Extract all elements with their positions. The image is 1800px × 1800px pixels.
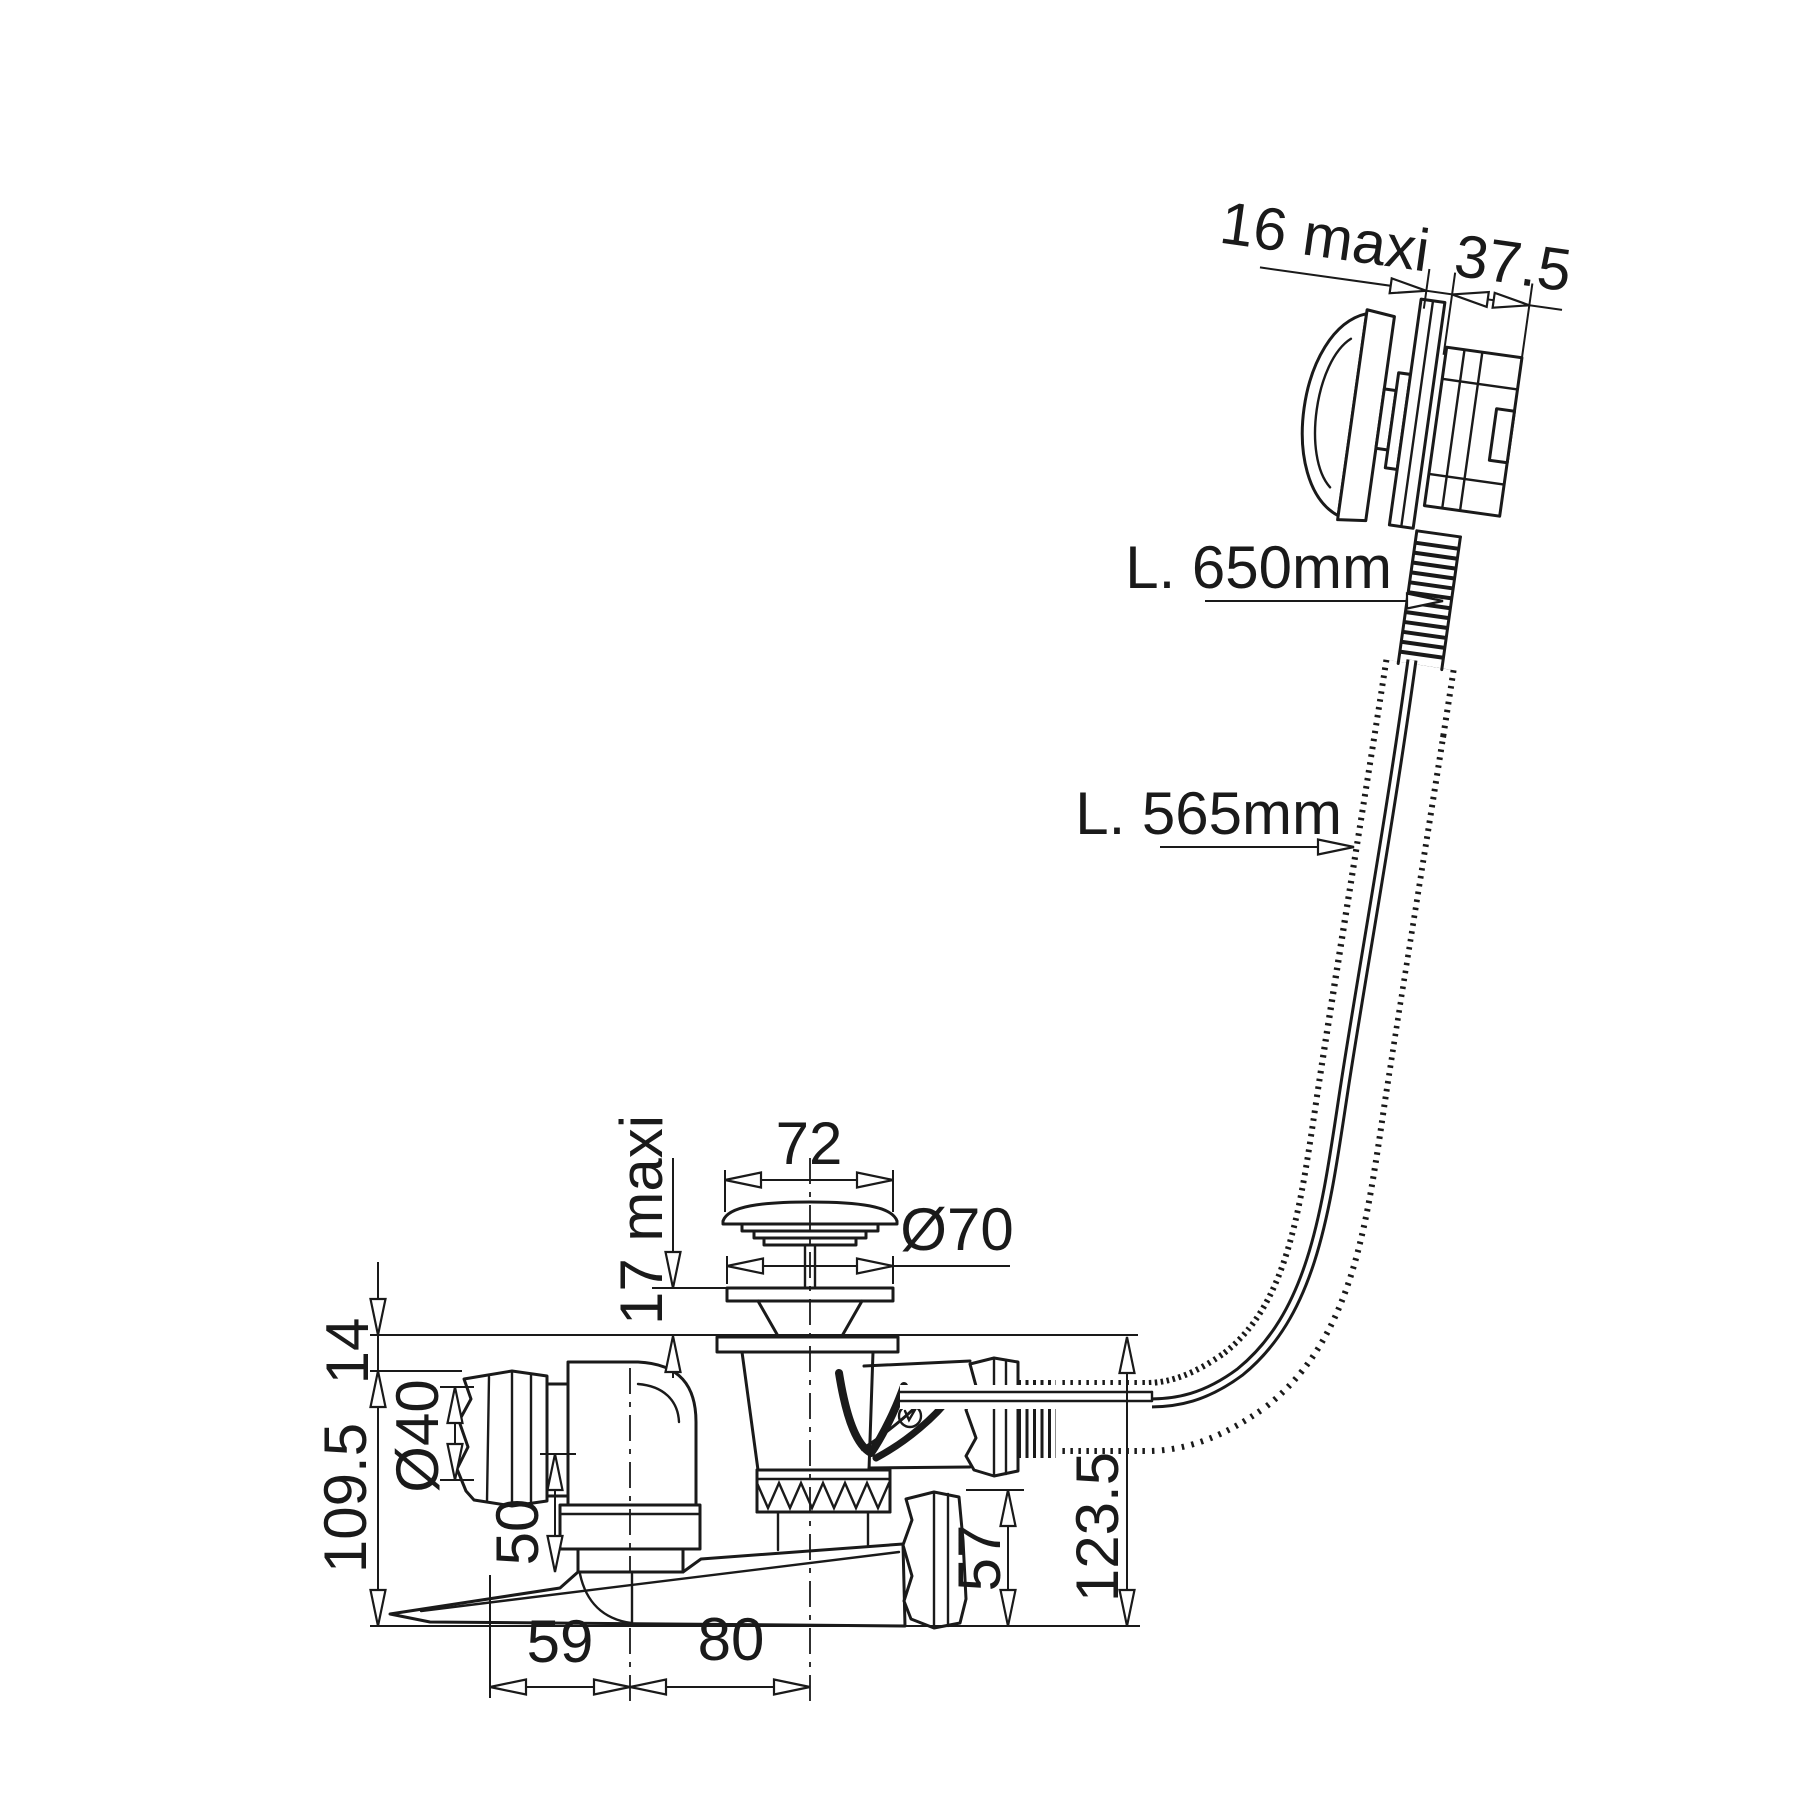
waste-body — [742, 1352, 758, 1470]
dim-label-sheath-length: L. 565mm — [1075, 780, 1342, 847]
dim-label-height-right: 123.5 — [1064, 1452, 1131, 1602]
dim-label-flange-offset: 14 — [314, 1318, 381, 1385]
dim-label-inlet-diameter: Ø40 — [384, 1379, 451, 1492]
dimension-annotations: L. 650mm L. 565mm 72 Ø70 17 maxi 14 — [312, 534, 1443, 1706]
trap-bottom-tray — [390, 1544, 905, 1626]
dim-label-flange-diameter: Ø70 — [900, 1196, 1013, 1263]
dim-label-overflow-wall-max: 16 maxi — [1216, 189, 1433, 285]
dim-label-plug-lift: 17 maxi — [608, 1115, 675, 1325]
dim-label-outlet-left: 59 — [527, 1608, 594, 1675]
dim-label-height-left: 109.5 — [312, 1423, 379, 1573]
waste-top-flange — [717, 1337, 898, 1352]
dim-label-outlet-right: 80 — [698, 1606, 765, 1673]
elbow-inlet — [568, 1362, 696, 1505]
dim-label-overflow-depth: 37.5 — [1451, 222, 1576, 305]
control-cable — [1062, 660, 1420, 1417]
overflow-knob-assembly: 16 maxi 37.5 — [1163, 189, 1575, 680]
dim-label-cable-length: L. 650mm — [1125, 534, 1392, 601]
overflow-connection-nut — [966, 1358, 1018, 1476]
bath-waste-overflow-technical-drawing: 16 maxi 37.5 — [0, 0, 1800, 1800]
pull-rod — [900, 1385, 1152, 1409]
dim-label-cap-width: 72 — [776, 1110, 843, 1177]
drawing-page: 16 maxi 37.5 — [0, 0, 1800, 1800]
compression-nut-left — [457, 1371, 547, 1506]
dim-label-elbow-drop: 50 — [484, 1499, 551, 1566]
strainer-crown — [757, 1470, 890, 1550]
dim-label-nut-height: 57 — [946, 1525, 1013, 1592]
